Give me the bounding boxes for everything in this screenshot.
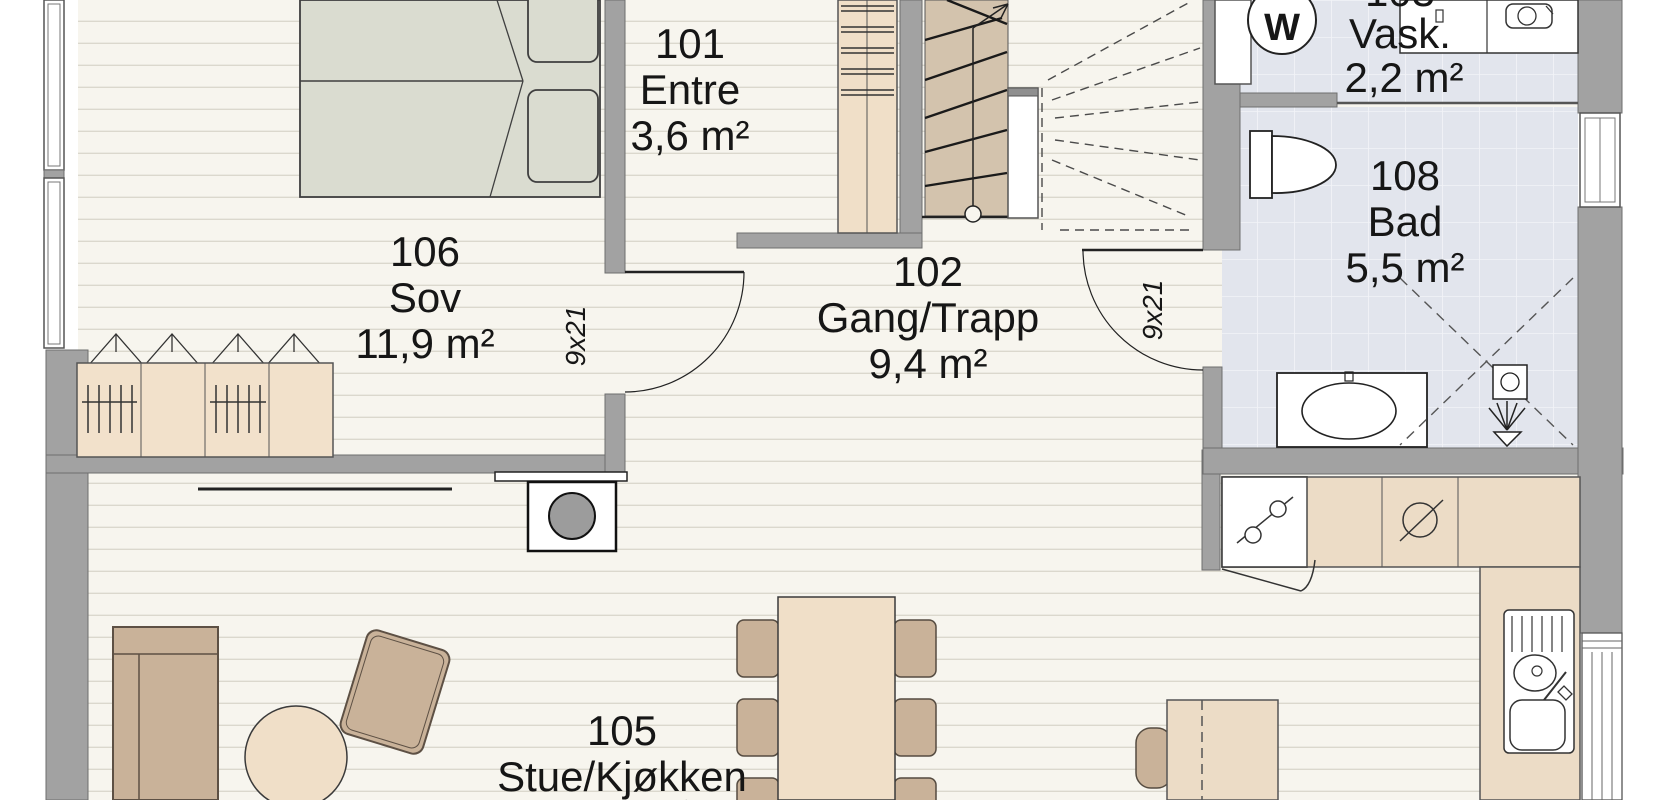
wall-vask-bottom bbox=[1240, 93, 1337, 107]
pillow bbox=[528, 0, 598, 62]
room-number: 105 bbox=[587, 707, 657, 754]
kitchen-sink-icon bbox=[1504, 610, 1574, 753]
chair bbox=[737, 699, 779, 756]
chair bbox=[737, 620, 779, 677]
stair-newel-icon bbox=[965, 206, 981, 222]
room-name: Entre bbox=[640, 66, 740, 113]
chair bbox=[894, 699, 936, 756]
room-area: 9,4 m² bbox=[868, 340, 987, 387]
floor-plan-page: 106 Sov 11,9 m² 9x21 101 Entre 3,6 m² bbox=[0, 0, 1670, 800]
room-name: Gang/Trapp bbox=[817, 294, 1040, 341]
wall-bad-left bbox=[1203, 367, 1222, 450]
room-number: 101 bbox=[655, 20, 725, 67]
wall-right-mid bbox=[1578, 207, 1622, 633]
floor-drain-icon bbox=[1493, 365, 1527, 399]
bed bbox=[300, 0, 600, 197]
wall-entre-gang bbox=[737, 233, 922, 248]
wall-bad-bottom bbox=[1203, 448, 1623, 474]
dining-table bbox=[778, 597, 895, 800]
kitchen-island bbox=[1167, 700, 1278, 800]
vask-door bbox=[1215, 0, 1251, 84]
room-name: Sov bbox=[389, 274, 461, 321]
room-area: 5,5 m² bbox=[1345, 244, 1464, 291]
room-name: Bad bbox=[1368, 198, 1443, 245]
window-sov-left-2 bbox=[44, 178, 64, 348]
entre-cabinet bbox=[838, 0, 897, 233]
door-size-label: 9x21 bbox=[1137, 280, 1168, 341]
room-number: 106 bbox=[390, 228, 460, 275]
floor-plan-drawing: 106 Sov 11,9 m² 9x21 101 Entre 3,6 m² bbox=[0, 0, 1670, 800]
room-area: 3,6 m² bbox=[630, 112, 749, 159]
wall-right-top bbox=[1578, 0, 1622, 113]
wall-sov-entre-upper bbox=[605, 0, 625, 273]
washing-machine-label: W bbox=[1264, 7, 1300, 49]
wall-cabinet-stairs bbox=[900, 0, 922, 233]
chair bbox=[894, 620, 936, 677]
window-mullion bbox=[44, 170, 64, 178]
chair bbox=[894, 778, 936, 800]
window-kitchen-right bbox=[1582, 633, 1622, 800]
room-label-vask: 103 Vask. 2,2 m² bbox=[1344, 0, 1463, 101]
room-area: 34,6 m² bbox=[551, 791, 693, 800]
window-bad-right bbox=[1580, 113, 1620, 207]
room-area: 11,9 m² bbox=[355, 320, 494, 367]
window-sov-left-1 bbox=[44, 0, 64, 170]
room-name: Vask. bbox=[1349, 10, 1451, 57]
room-number: 102 bbox=[893, 248, 963, 295]
laundry-sink-icon bbox=[1506, 4, 1553, 28]
dishwasher-icon bbox=[1222, 477, 1307, 567]
pillow bbox=[528, 90, 598, 182]
room-number: 108 bbox=[1370, 152, 1440, 199]
wall-sov-entre-lower bbox=[605, 394, 625, 473]
sofa bbox=[113, 627, 218, 800]
room-area: 2,2 m² bbox=[1344, 54, 1463, 101]
coffee-table bbox=[245, 706, 347, 800]
door-size-label: 9x21 bbox=[560, 306, 591, 367]
stair-railing bbox=[1008, 88, 1038, 218]
washbasin-icon bbox=[1277, 372, 1427, 447]
